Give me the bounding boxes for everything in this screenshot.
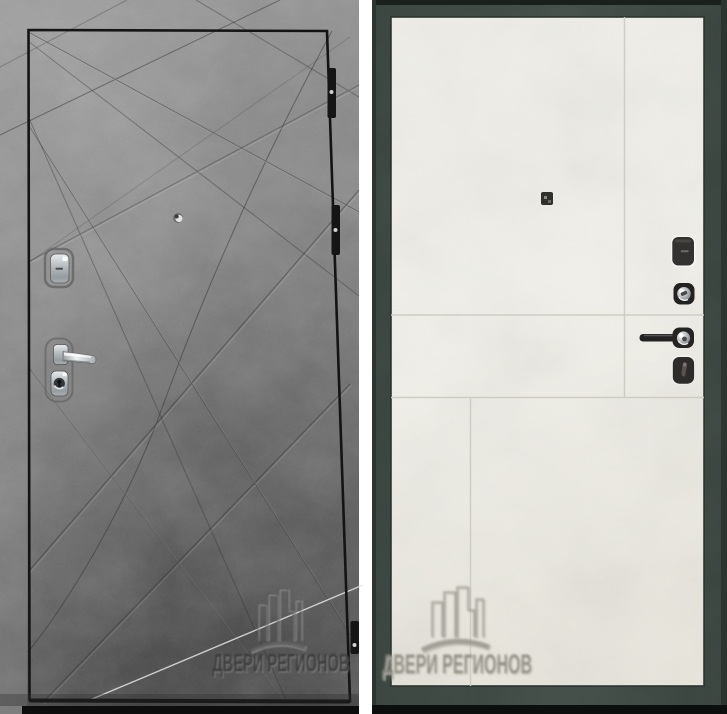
svg-text:ДВЕРИ РЕГИОНОВ: ДВЕРИ РЕГИОНОВ — [382, 649, 532, 680]
svg-text:ДВЕРИ РЕГИОНОВ: ДВЕРИ РЕГИОНОВ — [213, 650, 350, 678]
